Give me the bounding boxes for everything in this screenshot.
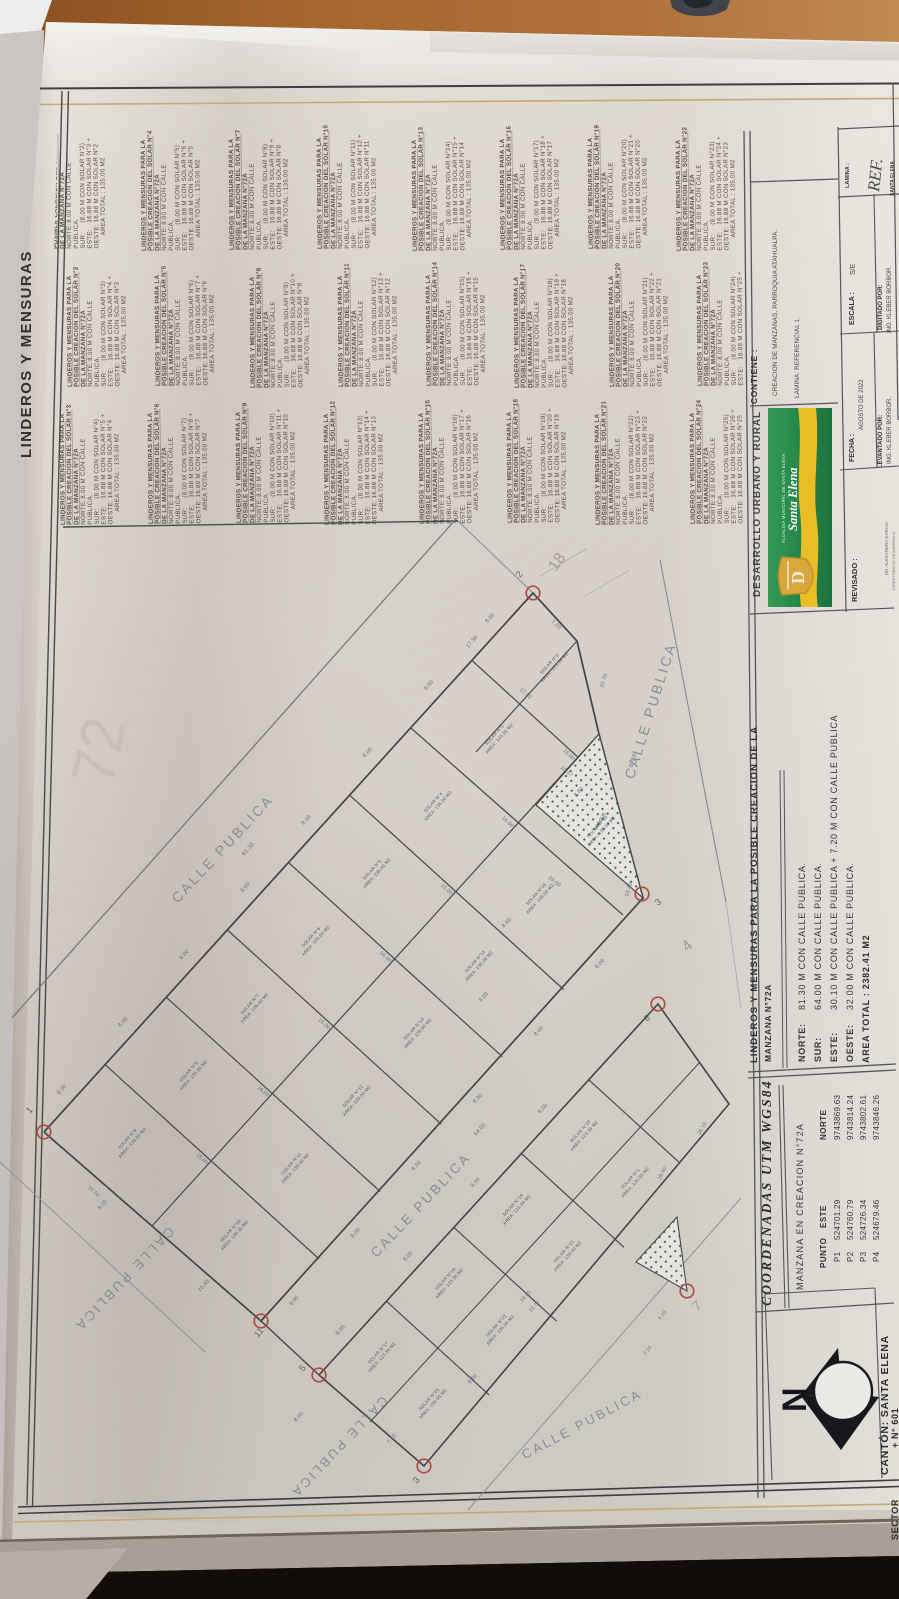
- svg-text:SANTA ELENA: SANTA ELENA: [890, 161, 896, 196]
- svg-text:AREA TOTAL : 135.00 M2: AREA TOTAL : 135.00 M2: [479, 294, 487, 373]
- svg-text:9743814.24: 9743814.24: [846, 1094, 855, 1140]
- svg-text:81.30 M CON CALLE PUBLICA.: 81.30 M CON CALLE PUBLICA.: [797, 862, 807, 1010]
- svg-text:FECHA :: FECHA :: [849, 434, 856, 462]
- svg-text:P3: P3: [859, 1251, 868, 1262]
- svg-text:AREA TOTAL : 135.00 M2: AREA TOTAL : 135.00 M2: [194, 159, 202, 238]
- svg-text:9743846.26: 9743846.26: [872, 1094, 881, 1140]
- svg-text:AGOSTO DE 2022: AGOSTO DE 2022: [859, 379, 865, 430]
- svg-text:P1: P1: [833, 1251, 842, 1262]
- svg-text:DIGITADO POR:: DIGITADO POR:: [878, 284, 884, 330]
- svg-text:AREA TOTAL : 2382.41 M2: AREA TOTAL : 2382.41 M2: [861, 935, 871, 1063]
- svg-text:DIRECTORA DE DESARROLLO: DIRECTORA DE DESARROLLO: [891, 532, 896, 590]
- svg-text:ING. KLEBER BORBOR.: ING. KLEBER BORBOR.: [887, 266, 893, 333]
- svg-text:AREA TOTAL : 135.00 M2: AREA TOTAL : 135.00 M2: [282, 158, 290, 237]
- svg-text:REVISADO :: REVISADO :: [850, 558, 859, 602]
- svg-text:AREA TOTAL : 135.00 M2: AREA TOTAL : 135.00 M2: [113, 433, 121, 512]
- svg-text:LAMINA :: LAMINA :: [845, 163, 851, 188]
- svg-text:P4: P4: [872, 1251, 881, 1262]
- svg-text:72: 72: [59, 711, 138, 790]
- svg-text:AREA TOTAL : 135.00 M2: AREA TOTAL : 135.00 M2: [370, 157, 378, 236]
- svg-text:9743802.61: 9743802.61: [859, 1094, 868, 1140]
- svg-text:+ N° 601: + N° 601: [890, 1408, 899, 1448]
- svg-text:LAMINA: REFERENCIAL 1.: LAMINA: REFERENCIAL 1.: [794, 317, 801, 398]
- svg-text:524679.46: 524679.46: [872, 1199, 881, 1240]
- svg-text:MANZANA EN CREACION N°72A: MANZANA EN CREACION N°72A: [795, 1123, 805, 1290]
- svg-text:AREA TOTAL : 135.00 M2: AREA TOTAL : 135.00 M2: [641, 157, 649, 236]
- svg-text:AREA TOTAL : 135.00 M2: AREA TOTAL : 135.00 M2: [567, 296, 575, 375]
- svg-text:AREA TOTAL : 135.00 M2: AREA TOTAL : 135.00 M2: [303, 296, 311, 375]
- svg-text:ESTE:: ESTE:: [829, 1032, 839, 1062]
- svg-text:AREA TOTAL : 135.00 M2: AREA TOTAL : 135.00 M2: [662, 295, 670, 374]
- svg-text:NORTE: NORTE: [819, 1109, 828, 1140]
- svg-text:9743869.63: 9743869.63: [833, 1094, 842, 1140]
- svg-text:NORTE:: NORTE:: [797, 1023, 807, 1062]
- svg-text:AREA TOTAL : 135.00 M2: AREA TOTAL : 135.00 M2: [99, 157, 107, 236]
- svg-text:MANZANA N°72A: MANZANA N°72A: [763, 984, 773, 1062]
- svg-text:CANTÓN: SANTA ELENA: CANTÓN: SANTA ELENA: [878, 1335, 891, 1475]
- svg-text:AREA TOTAL : 135.00 M2: AREA TOTAL : 135.00 M2: [729, 159, 737, 238]
- svg-text:COORDENADAS UTM WGS84: COORDENADAS UTM WGS84: [759, 1079, 774, 1306]
- svg-text:ING. KLEBER BORBOR.: ING. KLEBER BORBOR.: [887, 397, 893, 464]
- svg-text:CREACION DE MANZANAS, PARRO: CREACION DE MANZANAS, PARROQUIA ATAHUALP…: [772, 229, 779, 396]
- svg-text:524760.79: 524760.79: [846, 1199, 855, 1240]
- svg-text:AREA TOTAL : 135.00 M2: AREA TOTAL : 135.00 M2: [201, 432, 209, 511]
- svg-text:AREA TOTAL : 135.00 M2: AREA TOTAL : 135.00 M2: [648, 433, 656, 512]
- svg-text:AREA TOTAL : 135.00 M2: AREA TOTAL : 135.00 M2: [472, 432, 480, 511]
- svg-text:CONTIENE :: CONTIENE :: [749, 349, 759, 404]
- svg-text:ESTE: ESTE: [819, 1205, 828, 1228]
- svg-text:AREA TOTAL : 135.00 M2: AREA TOTAL : 135.00 M2: [289, 431, 297, 510]
- svg-text:524701.29: 524701.29: [833, 1199, 842, 1240]
- svg-text:S/E: S/E: [850, 263, 857, 275]
- svg-text:LINDEROS Y MENSURAS: LINDEROS Y MENSURAS: [18, 250, 35, 458]
- svg-text:AREA TOTAL : 135.00 M2: AREA TOTAL : 135.00 M2: [377, 433, 385, 512]
- svg-text:ESCALA :: ESCALA :: [849, 292, 856, 325]
- svg-text:OESTE:: OESTE:: [845, 1024, 855, 1062]
- svg-text:64.00 M CON CALLE PUBLICA.: 64.00 M CON CALLE PUBLICA.: [813, 862, 823, 1010]
- svg-text:SUR:: SUR:: [813, 1037, 823, 1062]
- svg-text:PUNTO: PUNTO: [819, 1238, 828, 1268]
- svg-text:AREA TOTAL : 135.00 M2: AREA TOTAL : 135.00 M2: [560, 431, 568, 510]
- svg-text:SECTOR: SECTOR: [890, 1499, 899, 1540]
- svg-text:AREA TOTAL : 135.00 M2: AREA TOTAL : 135.00 M2: [208, 294, 216, 373]
- svg-text:DR. ALEXANDRA GARCIA: DR. ALEXANDRA GARCIA: [884, 522, 889, 575]
- svg-text:REF.: REF.: [864, 157, 886, 193]
- svg-text:32.00 M CON CALLE PUBLICA.: 32.00 M CON CALLE PUBLICA.: [845, 862, 855, 1010]
- svg-text:AREA TOTAL : 135.00 M2: AREA TOTAL : 135.00 M2: [120, 295, 128, 374]
- svg-text:AREA TOTAL : 135.00 M2: AREA TOTAL : 135.00 M2: [465, 159, 473, 238]
- svg-text:P2: P2: [846, 1251, 855, 1262]
- svg-text:N: N: [776, 1387, 814, 1412]
- svg-text:30.10 M CON CALLE PUBLICA + 7.: 30.10 M CON CALLE PUBLICA + 7.20 M CON C…: [829, 715, 839, 1010]
- svg-text:D: D: [788, 571, 808, 584]
- svg-text:DESARROLLO URBANO Y RURAL: DESARROLLO URBANO Y RURAL: [752, 411, 763, 597]
- svg-text:524726.34: 524726.34: [859, 1199, 868, 1240]
- svg-text:Santa Elena: Santa Elena: [786, 467, 800, 531]
- svg-text:AREA TOTAL : 135.00 M2: AREA TOTAL : 135.00 M2: [553, 158, 561, 237]
- svg-text:LINDEROS Y MENSURAS PARA LA PO: LINDEROS Y MENSURAS PARA LA POSIBLE CREA…: [749, 726, 760, 1063]
- svg-text:LEVANTADO POR:: LEVANTADO POR:: [878, 415, 884, 468]
- svg-text:AREA TOTAL : 135.00 M2: AREA TOTAL : 135.00 M2: [391, 295, 399, 374]
